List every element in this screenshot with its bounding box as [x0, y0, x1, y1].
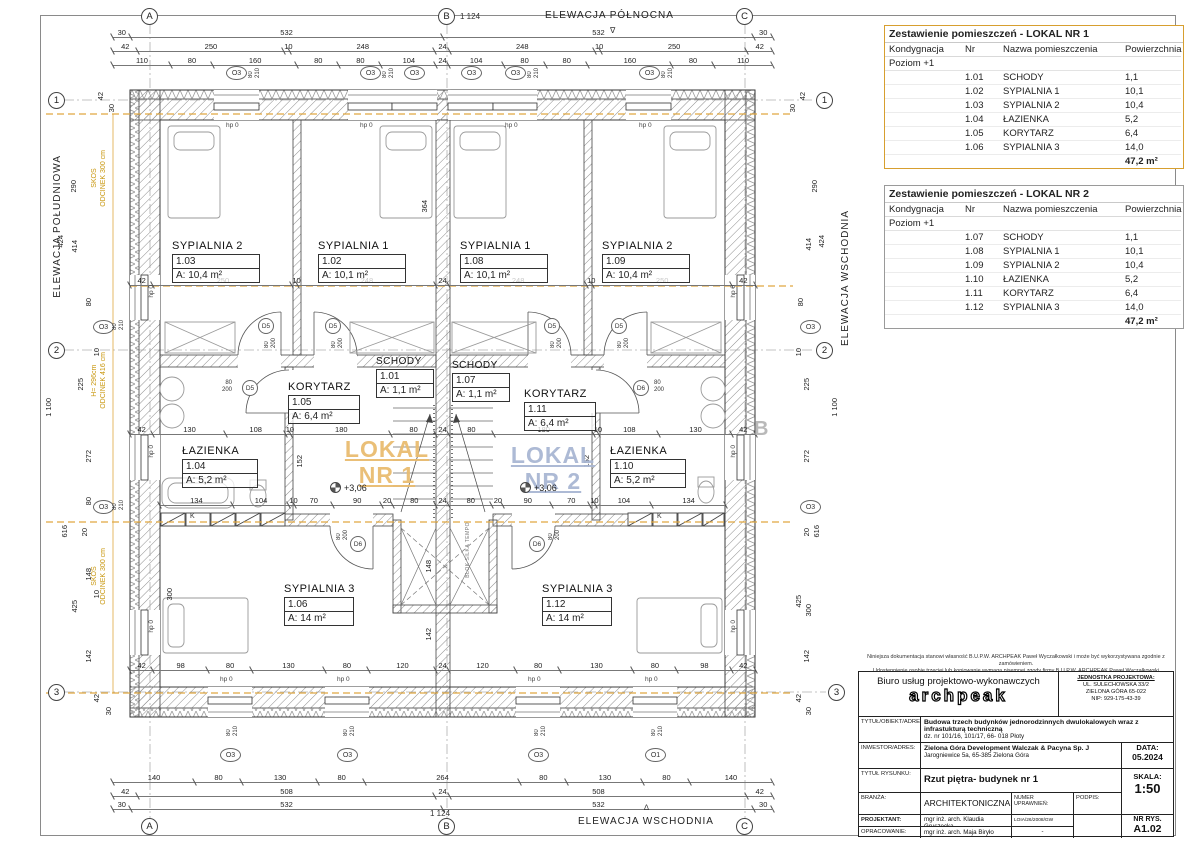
archpeak-logo: archpeak	[859, 687, 1058, 705]
room-label-1-06: SYPIALNIA 3 1.06A: 14 m²	[284, 583, 355, 626]
door-size: 80 200	[336, 530, 350, 540]
window-tag-O3: O3	[93, 500, 114, 514]
sill-label: hp 0	[730, 620, 737, 633]
table-row: 1.11KORYTARZ6,4	[885, 287, 1183, 301]
sill-label: hp 0	[528, 676, 541, 683]
dim-right: 42	[799, 92, 807, 100]
grid-bubble-2-left: 2	[48, 342, 65, 359]
dim-right: 30	[805, 707, 813, 715]
dim-right: 20	[803, 528, 811, 536]
table-level-row: Poziom +1	[885, 57, 1183, 71]
dim-right: 142	[803, 650, 811, 663]
door-tag-D5: D5	[544, 318, 560, 334]
drawing-number-cell: NR RYS. A1.02	[1121, 814, 1173, 838]
sill-label: hp 0	[226, 122, 239, 129]
table-body: 1.01SCHODY1,1 1.02SYPIALNIA 110,1 1.03SY…	[885, 71, 1183, 155]
sill-label: hp 0	[360, 122, 373, 129]
window-tag-O3: O3	[226, 66, 247, 80]
room-label-1-09: SYPIALNIA 2 1.09A: 10,4 m²	[602, 240, 690, 283]
dim-inner: 300	[166, 588, 174, 601]
level-target-icon	[520, 482, 531, 493]
window-tag-O3: O3	[220, 748, 241, 762]
license-number-label: NUMER UPRAWNIEŃ:	[1011, 792, 1073, 814]
office-header: Biuro usług projektowo-wykonawczych arch…	[859, 672, 1059, 716]
window-size: 80 210	[661, 68, 675, 78]
overall-width-bottom: 1 124	[430, 809, 450, 818]
room-label-1-04: ŁAZIENKA 1.04A: 5,2 m²	[182, 445, 258, 488]
dim-right: 414	[805, 238, 813, 251]
branch-label: BRANŻA:	[859, 792, 921, 814]
dim-left: 414	[71, 240, 79, 253]
compiled-license: -	[1011, 826, 1073, 838]
sill-label: hp 0	[505, 122, 518, 129]
dim-left: 425	[71, 600, 79, 613]
date-cell: DATA: 05.2024	[1121, 742, 1173, 768]
dim-inner: 364	[421, 200, 429, 213]
room-label-1-05: KORYTARZ 1.05A: 6,4 m²	[288, 381, 360, 424]
signature-space	[1073, 814, 1121, 838]
investor-value: Zielona Góra Development Walczak & Pacyn…	[921, 742, 1121, 768]
dim-row-corridor: 42130108101808024801801010813042	[130, 424, 755, 435]
window-tag-O3: O3	[461, 66, 482, 80]
door-size: 80 200	[222, 380, 232, 394]
drawing-title-value: Rzut piętra- budynek nr 1	[921, 768, 1121, 792]
table-row: 1.08SYPIALNIA 110,1	[885, 245, 1183, 259]
table-header: KondygnacjaNr Nazwa pomieszczeniaPowierz…	[885, 203, 1183, 217]
table-row: 1.06SYPIALNIA 314,0	[885, 141, 1183, 155]
object-value: Budowa trzech budynków jednorodzinnych d…	[921, 716, 1173, 742]
dim-left: 30	[108, 104, 116, 112]
elevation-title-bottom: ELEWACJA WSCHODNIA	[578, 816, 714, 827]
window-tag-O3: O3	[800, 320, 821, 334]
sill-label: hp 0	[337, 676, 350, 683]
door-tag-D5: D5	[258, 318, 274, 334]
dim-left: 225	[77, 378, 85, 391]
elevation-title-south: ELEWACJA POŁUDNIOWA	[52, 155, 63, 298]
window-size: 80 210	[112, 320, 126, 330]
slope-note-2: H= 296cm ODCINEK 416 cm	[90, 352, 108, 409]
dim-row-top-1: 3053253230	[113, 27, 772, 38]
dim-left: 30	[105, 707, 113, 715]
table-row: 1.02SYPIALNIA 110,1	[885, 85, 1183, 99]
dim-right: 30	[789, 104, 797, 112]
title-block-table: Biuro usług projektowo-wykonawczych arch…	[858, 671, 1174, 837]
lokal-1-watermark: LOKAL NR 1	[332, 436, 442, 488]
grid-bubble-A-top: A	[141, 8, 158, 25]
dim-left: 42	[97, 92, 105, 100]
grid-bubble-B-top: B	[438, 8, 455, 25]
table-title: Zestawienie pomieszczeń - LOKAL NR 1	[885, 26, 1183, 43]
dim-right: 225	[803, 378, 811, 391]
door-tag-D5: D5	[611, 318, 627, 334]
signature-label: PODPIS:	[1073, 792, 1121, 814]
design-unit: JEDNOSTKA PROJEKTOWA: UL. SULECHOWSKA 33…	[1059, 672, 1173, 716]
window-size: 80 210	[534, 726, 548, 736]
window-tag-O1: O1	[645, 748, 666, 762]
window-tag-O3: O3	[528, 748, 549, 762]
window-size: 80 210	[527, 68, 541, 78]
dim-left: 42	[93, 694, 101, 702]
room-label-1-02: SYPIALNIA 1 1.02A: 10,1 m²	[318, 240, 406, 283]
grid-bubble-1-left: 1	[48, 92, 65, 109]
sill-label: hp 0	[220, 676, 233, 683]
scale-cell: SKALA: 1:50	[1121, 768, 1173, 814]
dim-right: 424	[818, 235, 826, 248]
window-size: 80 210	[343, 726, 357, 736]
window-size: 80 210	[248, 68, 262, 78]
office-name: Biuro usług projektowo-wykonawczych	[859, 672, 1058, 687]
room-schedule-lokal-2: Zestawienie pomieszczeń - LOKAL NR 2 Kon…	[884, 185, 1184, 329]
door-size: 80 200	[617, 338, 631, 348]
section-b-marker: B	[754, 418, 768, 441]
door-size: 80 200	[550, 338, 564, 348]
level-target-icon	[330, 482, 341, 493]
table-row: 1.09SYPIALNIA 210,4	[885, 259, 1183, 273]
table-level-row: Poziom +1	[885, 217, 1183, 231]
dim-left: 20	[81, 528, 89, 536]
table-row: 1.10ŁAZIENKA5,2	[885, 273, 1183, 287]
door-tag-D5: D5	[325, 318, 341, 334]
level-marker-2: +3,06	[520, 482, 557, 493]
grid-bubble-B-bottom: B	[438, 818, 455, 835]
grid-bubble-A-bottom: A	[141, 818, 158, 835]
sill-label: hp 0	[148, 285, 155, 298]
window-size: 80 210	[382, 68, 396, 78]
compiled-value: mgr inż. arch. Maja Biryło	[921, 826, 1011, 838]
branch-value: ARCHITEKTONICZNA	[921, 792, 1011, 814]
dim-left: 616	[61, 525, 69, 538]
architectural-sheet: 3053253230 4225010248242481025042 110801…	[0, 0, 1191, 842]
dim-row-bottom-1: 14080130802648013080140	[113, 772, 772, 783]
dim-right: 42	[795, 694, 803, 702]
dim-left: 142	[85, 650, 93, 663]
grid-bubble-1-right: 1	[816, 92, 833, 109]
dim-row-top-2: 4225010248242481025042	[113, 41, 772, 52]
dim-inner: 152	[296, 455, 304, 468]
window-tag-O3: O3	[639, 66, 660, 80]
interior-walls	[160, 90, 725, 717]
copyright-disclaimer: Niniejsza dokumentacja stanowi własność …	[858, 654, 1174, 670]
dim-right: 425	[795, 595, 803, 608]
dim-inner: 142	[425, 628, 433, 641]
slope-note-3: SKOS ODCINEK 300 cm	[90, 548, 108, 605]
door-tag-D6-bath: D6	[633, 380, 649, 396]
dim-row-bath: 1341041070902080248020907010104134	[160, 495, 725, 506]
dim-right: 290	[811, 180, 819, 193]
table-total-row: 47,2 m²	[885, 155, 1183, 168]
object-label: TYTUŁ/OBIEKT/ADRES:	[859, 716, 921, 742]
sill-label: hp 0	[730, 285, 737, 298]
door-tag-D6: D6	[529, 536, 545, 552]
section-marker-bottom: ∆	[644, 803, 649, 812]
window-size: 80 210	[112, 500, 126, 510]
table-row: 1.05KORYTARZ6,4	[885, 127, 1183, 141]
room-label-1-11: KORYTARZ 1.11A: 6,4 m²	[524, 388, 596, 431]
dim-row-bottom-2: 425082450842	[113, 786, 772, 797]
grid-bubble-3-left: 3	[48, 684, 65, 701]
grid-bubble-C-bottom: C	[736, 818, 753, 835]
table-header: KondygnacjaNr Nazwa pomieszczeniaPowierz…	[885, 43, 1183, 57]
designer-value: mgr inż. arch. Klaudia Gruszecka UPRAWNI…	[921, 814, 1011, 826]
k-box-label: K	[657, 513, 662, 520]
level-marker-1: +3,06	[330, 482, 367, 493]
room-label-1-08: SYPIALNIA 1 1.08A: 10,1 m²	[460, 240, 548, 283]
dim-right-overall: 1 100	[831, 398, 839, 417]
title-block: Niniejsza dokumentacja stanowi własność …	[858, 654, 1174, 838]
drawing-title-label: TYTUŁ RYSUNKU:	[859, 768, 921, 792]
window-tag-O3: O3	[505, 66, 526, 80]
window-size: 80 210	[651, 726, 665, 736]
grid-bubble-2-right: 2	[816, 342, 833, 359]
door-size: 80 200	[331, 338, 345, 348]
window-tag-O3: O3	[360, 66, 381, 80]
table-row: 1.12SYPIALNIA 314,0	[885, 301, 1183, 315]
sill-label: hp 0	[148, 445, 155, 458]
window-tag-O3: O3	[337, 748, 358, 762]
compiled-label: OPRACOWANIE:	[859, 826, 921, 838]
room-label-1-10: ŁAZIENKA 1.10A: 5,2 m²	[610, 445, 686, 488]
dim-left-overall: 1 100	[45, 398, 53, 417]
sill-label: hp 0	[148, 620, 155, 633]
door-size: 80 200	[654, 380, 664, 394]
door-size: 80 200	[548, 530, 562, 540]
room-label-1-12: SYPIALNIA 3 1.12A: 14 m²	[542, 583, 613, 626]
door-tag-D6: D6	[350, 536, 366, 552]
elevation-title-east: ELEWACJA WSCHODNIA	[840, 210, 851, 346]
section-marker-top: ∇	[610, 26, 615, 35]
window-tag-O3: O3	[404, 66, 425, 80]
dim-inner: 148	[425, 560, 433, 573]
dim-left: 80	[85, 497, 93, 505]
slope-note-1: SKOS ODCINEK 300 cm	[90, 150, 108, 207]
dim-row-top-3: 11080160808010424104808016080110	[113, 55, 772, 66]
designer-label: PROJEKTANT:	[859, 814, 921, 826]
window-tag-O3: O3	[800, 500, 821, 514]
window-size: 80 210	[226, 726, 240, 736]
room-label-1-01: SCHODY 1.01A: 1,1 m²	[376, 356, 434, 398]
grid-bubble-C-top: C	[736, 8, 753, 25]
sill-label: hp 0	[645, 676, 658, 683]
k-box-label: K	[190, 513, 195, 520]
dim-left: 272	[85, 450, 93, 463]
table-row: 1.07SCHODY1,1	[885, 231, 1183, 245]
dim-left: 290	[70, 180, 78, 193]
dim-right: 300	[805, 604, 813, 617]
room-schedule-lokal-1: Zestawienie pomieszczeń - LOKAL NR 1 Kon…	[884, 25, 1184, 169]
wall-material-note: BLOK SILKA TEMPO	[465, 522, 471, 578]
designer-license: LOIA/26/2008/GW	[1011, 814, 1073, 826]
sill-label: hp 0	[639, 122, 652, 129]
room-label-1-03: SYPIALNIA 2 1.03A: 10,4 m²	[172, 240, 260, 283]
overall-width-top: 1 124	[460, 12, 480, 21]
dim-right: 10	[795, 348, 803, 356]
elevation-title-north: ELEWACJA PÓŁNOCNA	[545, 10, 674, 21]
door-size: 80 200	[264, 338, 278, 348]
table-row: 1.01SCHODY1,1	[885, 71, 1183, 85]
investor-label: INWESTOR/ADRES:	[859, 742, 921, 768]
table-title: Zestawienie pomieszczeń - LOKAL NR 2	[885, 186, 1183, 203]
dim-right: 616	[813, 525, 821, 538]
dim-right: 80	[797, 298, 805, 306]
table-total-row: 47,2 m²	[885, 315, 1183, 328]
grid-bubble-3-right: 3	[828, 684, 845, 701]
dim-left: 80	[85, 298, 93, 306]
table-row: 1.04ŁAZIENKA5,2	[885, 113, 1183, 127]
room-label-1-07: SCHODY 1.07A: 1,1 m²	[452, 360, 510, 402]
sill-label: hp 0	[730, 445, 737, 458]
table-row: 1.03SYPIALNIA 210,4	[885, 99, 1183, 113]
window-tag-O3: O3	[93, 320, 114, 334]
dim-right: 272	[803, 450, 811, 463]
table-body: 1.07SCHODY1,1 1.08SYPIALNIA 110,1 1.09SY…	[885, 231, 1183, 315]
door-tag-D5-bath: D5	[242, 380, 258, 396]
dim-row-lower: 429880130801202412080130809842	[130, 660, 755, 671]
